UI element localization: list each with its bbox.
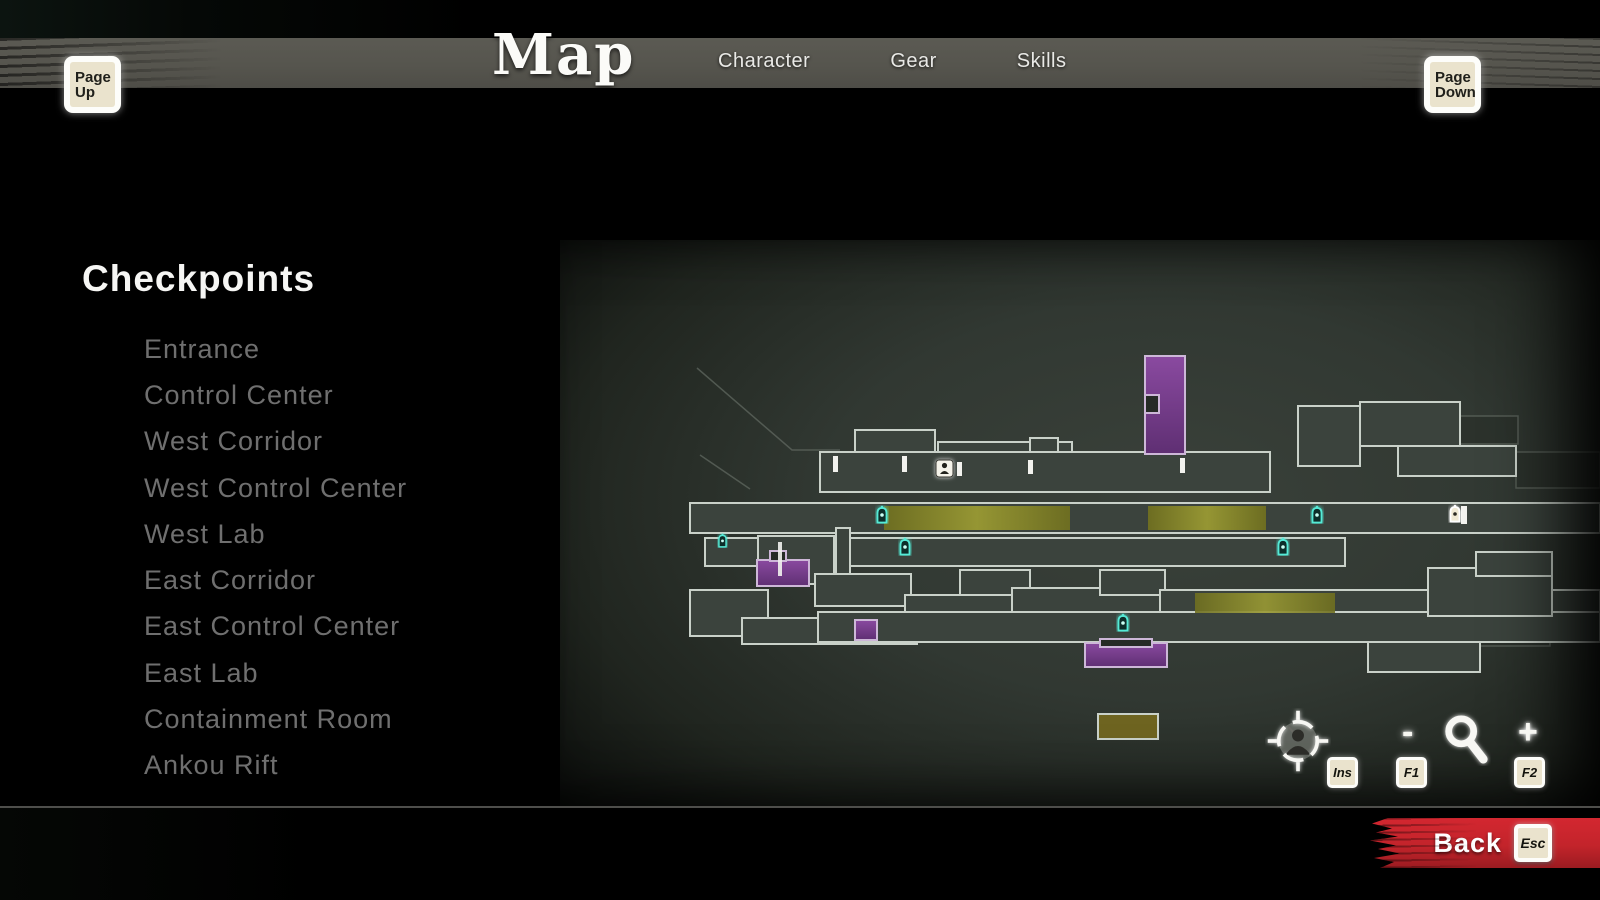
tab-gear[interactable]: Gear bbox=[890, 50, 936, 73]
page-title: Map bbox=[492, 22, 612, 88]
checkpoint-item[interactable]: Control Center bbox=[144, 372, 407, 418]
page-up-button[interactable]: Page Up bbox=[64, 56, 121, 113]
checkpoint-item[interactable]: West Control Center bbox=[144, 465, 407, 511]
tab-character[interactable]: Character bbox=[718, 50, 810, 73]
checkpoint-list: EntranceControl CenterWest CorridorWest … bbox=[144, 326, 407, 789]
checkpoint-lantern-icon[interactable] bbox=[1313, 506, 1322, 523]
zoom-out-key-label: F1 bbox=[1399, 760, 1424, 785]
zoom-out-key-badge: F1 bbox=[1396, 757, 1427, 788]
map-screen: Map CharacterGearSkills Page Up Page Dow… bbox=[0, 0, 1600, 900]
checkpoint-lantern-icon[interactable] bbox=[878, 506, 887, 523]
page-up-key-face: Page Up bbox=[70, 62, 115, 107]
checkpoint-item[interactable]: West Corridor bbox=[144, 419, 407, 465]
back-key-label: Esc bbox=[1518, 828, 1548, 858]
page-down-label-line1: Page bbox=[1435, 70, 1471, 85]
checkpoint-lantern-icon[interactable] bbox=[901, 538, 910, 555]
tab-skills[interactable]: Skills bbox=[1017, 50, 1067, 73]
tab-nav: CharacterGearSkills bbox=[718, 50, 1066, 73]
page-down-key-face: Page Down bbox=[1430, 62, 1475, 107]
page-down-button[interactable]: Page Down bbox=[1424, 56, 1481, 113]
checkpoint-item[interactable]: West Lab bbox=[144, 511, 407, 557]
zoom-in-button[interactable]: + bbox=[1518, 722, 1538, 742]
checkpoint-lantern-selected-icon[interactable] bbox=[1451, 505, 1460, 522]
page-up-label-line2: Up bbox=[75, 85, 95, 100]
collectibles-row: Elite Squads Secrets Oboro Relics Ankou … bbox=[0, 88, 1600, 240]
checkpoint-item[interactable]: Containment Room bbox=[144, 696, 407, 742]
checkpoints-heading: Checkpoints bbox=[82, 258, 315, 300]
content-area: Checkpoints EntranceControl CenterWest C… bbox=[0, 240, 1600, 806]
center-key-label: Ins bbox=[1330, 760, 1355, 785]
zoom-in-key-label: F2 bbox=[1517, 760, 1542, 785]
top-strip bbox=[0, 0, 1600, 38]
page-down-label-line2: Down bbox=[1435, 85, 1476, 100]
back-label: Back bbox=[1433, 828, 1502, 859]
zoom-in-key-badge: F2 bbox=[1514, 757, 1545, 788]
checkpoint-item[interactable]: East Control Center bbox=[144, 604, 407, 650]
player-position-icon bbox=[936, 460, 953, 477]
checkpoint-lantern-icon[interactable] bbox=[719, 534, 726, 547]
checkpoint-item[interactable]: Ankou Rift bbox=[144, 743, 407, 789]
page-up-label-line1: Page bbox=[75, 70, 111, 85]
checkpoint-lantern-icon[interactable] bbox=[1279, 538, 1288, 555]
back-button[interactable]: Back Esc bbox=[1368, 818, 1600, 868]
magnifier-icon bbox=[1441, 712, 1491, 766]
back-key-badge: Esc bbox=[1514, 824, 1552, 862]
checkpoint-item[interactable]: East Lab bbox=[144, 650, 407, 696]
bottom-bar: Back Esc bbox=[0, 808, 1600, 900]
zoom-out-button[interactable]: - bbox=[1402, 722, 1413, 742]
checkpoint-lantern-icon[interactable] bbox=[1119, 614, 1128, 631]
checkpoint-item[interactable]: Entrance bbox=[144, 326, 407, 372]
center-on-player-button[interactable] bbox=[1265, 708, 1331, 774]
center-key-badge: Ins bbox=[1327, 757, 1358, 788]
checkpoint-item[interactable]: East Corridor bbox=[144, 557, 407, 603]
